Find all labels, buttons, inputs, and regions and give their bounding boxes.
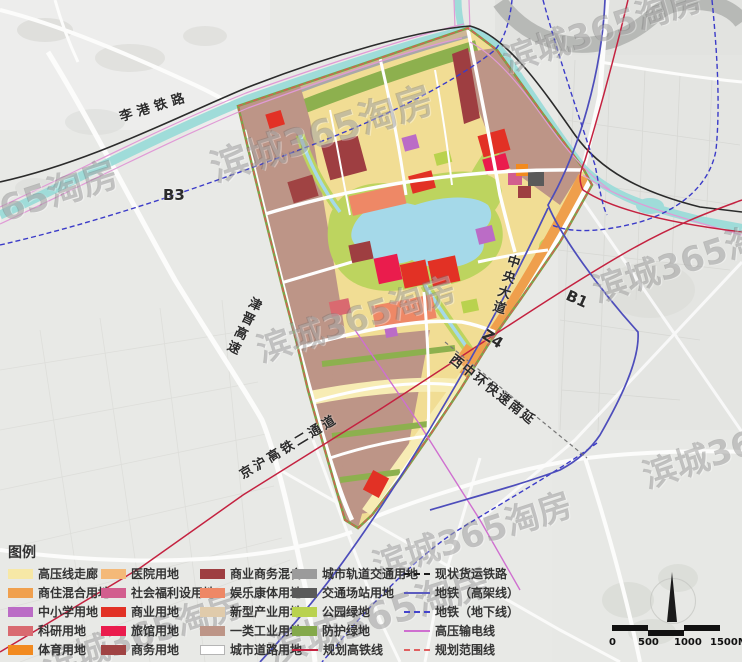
legend-item-label: 地铁（地下线）	[435, 603, 519, 620]
legend-item-label: 商业用地	[131, 603, 179, 620]
legend-item-label: 规划范围线	[435, 641, 495, 658]
legend-swatch	[292, 588, 317, 598]
scale-bar-band	[612, 625, 732, 636]
legend-swatch	[101, 607, 126, 617]
legend: 图例 高压线走廊商住混合用地中小学用地科研用地体育用地医院用地社会福利设用地商业…	[6, 542, 506, 660]
legend-item: 防护绿地	[292, 621, 418, 640]
legend-swatch	[292, 607, 317, 617]
legend-swatch	[101, 645, 126, 655]
legend-item: 现状货运铁路	[404, 564, 519, 583]
legend-item-label: 现状货运铁路	[435, 565, 507, 582]
legend-swatch	[8, 607, 33, 617]
legend-line	[292, 649, 318, 651]
legend-swatch	[8, 569, 33, 579]
legend-line	[404, 611, 430, 613]
legend-item: 旅馆用地	[101, 621, 215, 640]
legend-item: 商住混合用地	[8, 583, 110, 602]
legend-item: 高压线走廊	[8, 564, 110, 583]
legend-swatch	[200, 588, 225, 598]
scale-tick: 500	[638, 637, 659, 648]
legend-item-label: 旅馆用地	[131, 622, 179, 639]
legend-item: 规划高铁线	[292, 640, 418, 659]
legend-item: 医院用地	[101, 564, 215, 583]
legend-item: 高压输电线	[404, 621, 519, 640]
legend-item: 中小学用地	[8, 602, 110, 621]
legend-item-label: 公园绿地	[322, 603, 370, 620]
legend-swatch	[200, 607, 225, 617]
legend-item: 交通场站用地	[292, 583, 418, 602]
legend-swatch	[8, 645, 33, 655]
legend-item-label: 医院用地	[131, 565, 179, 582]
legend-swatch	[292, 626, 317, 636]
legend-column: 医院用地社会福利设用地商业用地旅馆用地商务用地	[101, 564, 215, 659]
legend-title: 图例	[8, 542, 506, 562]
scale-bar-ticks: 0 500 1000 1500M	[612, 636, 732, 648]
legend-item-label: 地铁（高架线）	[435, 584, 519, 601]
legend-column: 城市轨道交通用地交通场站用地公园绿地防护绿地规划高铁线	[292, 564, 418, 659]
scale-tick: 0	[609, 637, 616, 648]
legend-line	[404, 649, 430, 651]
legend-item: 城市轨道交通用地	[292, 564, 418, 583]
legend-swatch	[292, 569, 317, 579]
legend-item: 公园绿地	[292, 602, 418, 621]
legend-swatch	[200, 569, 225, 579]
legend-swatch	[101, 626, 126, 636]
legend-item-label: 体育用地	[38, 641, 86, 658]
legend-swatch	[200, 645, 225, 655]
legend-line	[404, 630, 430, 632]
legend-item-label: 规划高铁线	[323, 641, 383, 658]
legend-item: 科研用地	[8, 621, 110, 640]
legend-item: 规划范围线	[404, 640, 519, 659]
legend-item: 社会福利设用地	[101, 583, 215, 602]
scale-tick: 1000	[674, 637, 702, 648]
legend-swatch	[8, 588, 33, 598]
legend-item: 体育用地	[8, 640, 110, 659]
legend-swatch	[200, 626, 225, 636]
legend-item: 一类工业用地	[200, 621, 302, 640]
legend-column: 高压线走廊商住混合用地中小学用地科研用地体育用地	[8, 564, 110, 659]
scale-bar: 0 500 1000 1500M	[612, 625, 732, 648]
legend-item-label: 商务用地	[131, 641, 179, 658]
legend-swatch	[101, 588, 126, 598]
legend-item-label: 高压输电线	[435, 622, 495, 639]
legend-column: 商业商务混合娱乐康体用地新型产业用地一类工业用地城市道路用地	[200, 564, 302, 659]
legend-item: 城市道路用地	[200, 640, 302, 659]
legend-item: 地铁（地下线）	[404, 602, 519, 621]
legend-swatch	[8, 626, 33, 636]
legend-item: 商业用地	[101, 602, 215, 621]
legend-line	[404, 592, 430, 594]
legend-column: 现状货运铁路地铁（高架线）地铁（地下线）高压输电线规划范围线	[404, 564, 519, 659]
legend-item-label: 中小学用地	[38, 603, 98, 620]
planning-map: 李港铁路 B3 津晋高速 京沪高铁二通道 中央大道 Z4 西中环快速南延 B1 …	[0, 0, 742, 662]
legend-item: 新型产业用地	[200, 602, 302, 621]
legend-item-label: 科研用地	[38, 622, 86, 639]
legend-item-label: 商住混合用地	[38, 584, 110, 601]
north-needle-icon	[667, 572, 677, 622]
legend-item: 娱乐康体用地	[200, 583, 302, 602]
legend-item: 地铁（高架线）	[404, 583, 519, 602]
legend-item: 商务用地	[101, 640, 215, 659]
legend-line	[404, 573, 430, 575]
legend-item-label: 防护绿地	[322, 622, 370, 639]
legend-item-label: 高压线走廊	[38, 565, 98, 582]
legend-item: 商业商务混合	[200, 564, 302, 583]
north-arrow	[648, 566, 696, 626]
legend-swatch	[101, 569, 126, 579]
scale-tick: 1500M	[710, 637, 742, 648]
legend-item-label: 交通场站用地	[322, 584, 394, 601]
